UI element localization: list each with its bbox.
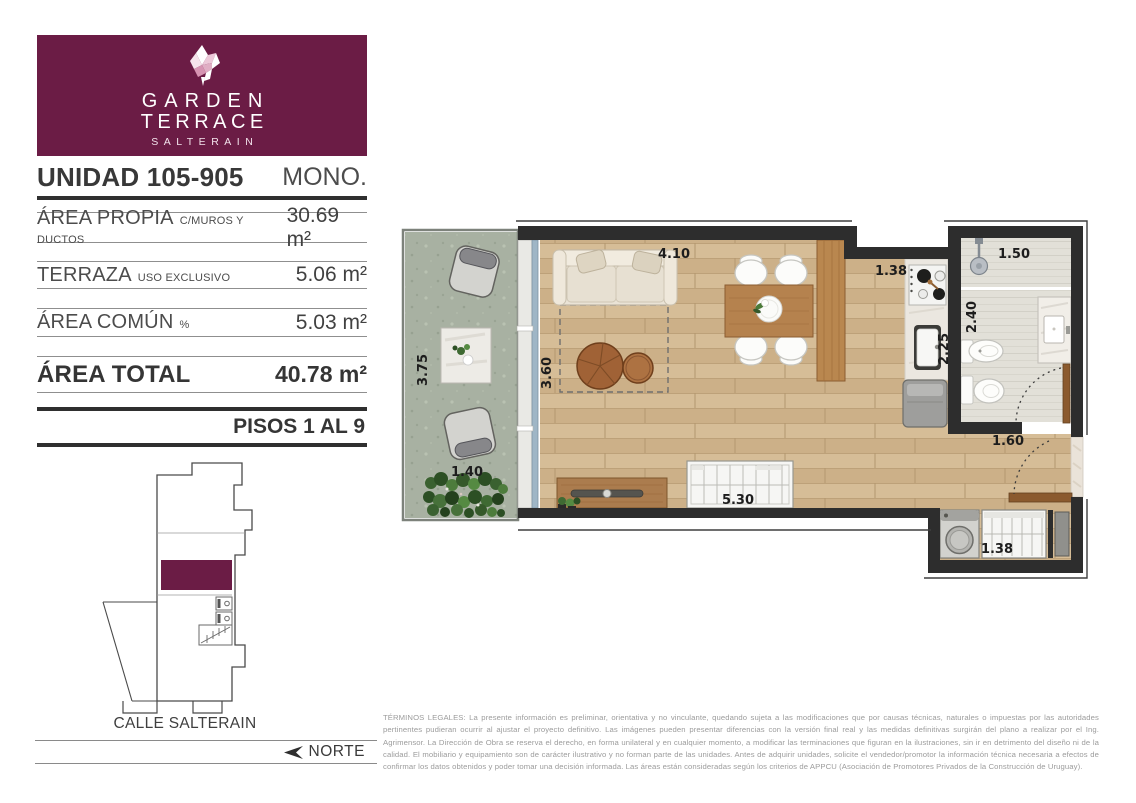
area-sublabel: % bbox=[179, 319, 189, 331]
dim-living-depth: 3.60 bbox=[540, 357, 555, 389]
terrace-chair bbox=[443, 406, 498, 462]
stove bbox=[909, 265, 946, 305]
vanity bbox=[1038, 297, 1071, 363]
chair bbox=[775, 334, 807, 360]
unit-title-row: UNIDAD 105-905 MONO. bbox=[37, 158, 367, 196]
legal-terms: TÉRMINOS LEGALES: La presente informació… bbox=[383, 712, 1099, 773]
street-label: CALLE SALTERAIN bbox=[95, 715, 275, 733]
area-row-propia: ÁREA PROPIAC/MUROS Y DUCTOS 30.69 m² bbox=[37, 212, 367, 243]
area-value: 30.69 m² bbox=[287, 204, 367, 252]
unit-number: UNIDAD 105-905 bbox=[37, 162, 244, 193]
area-value: 5.06 m² bbox=[296, 263, 367, 287]
dim-counter-depth: 2.25 bbox=[937, 333, 952, 365]
dim-terrace-depth: 3.75 bbox=[416, 354, 431, 386]
dim-living-width: 4.10 bbox=[658, 247, 690, 262]
chair bbox=[735, 334, 767, 360]
divider bbox=[37, 196, 367, 200]
window-mullion bbox=[517, 426, 533, 431]
area-row-terraza: TERRAZAUSO EXCLUSIVO 5.06 m² bbox=[37, 261, 367, 289]
brand-name-line1: GARDEN bbox=[135, 91, 270, 112]
bathroom-door bbox=[1063, 364, 1070, 423]
unit-sheet-page: GARDEN TERRACE SALTERAIN UNIDAD 105-905 … bbox=[0, 0, 1136, 803]
brand-name-line2: TERRACE bbox=[136, 112, 268, 133]
highlighted-unit bbox=[161, 560, 232, 590]
chair bbox=[735, 260, 767, 286]
divider bbox=[37, 407, 367, 411]
brand-logo: GARDEN TERRACE SALTERAIN bbox=[37, 35, 367, 156]
area-label: TERRAZA bbox=[37, 264, 132, 286]
dim-terrace-width: 1.40 bbox=[451, 465, 483, 480]
wood-partition bbox=[817, 240, 845, 381]
brand-name-line3: SALTERAIN bbox=[146, 136, 259, 148]
dim-laundry-width: 1.38 bbox=[981, 542, 1013, 557]
fridge bbox=[903, 380, 947, 427]
area-value: 5.03 m² bbox=[296, 311, 367, 335]
window-glass bbox=[532, 240, 538, 508]
media-console bbox=[557, 478, 667, 510]
shower-glass bbox=[961, 287, 1071, 290]
area-row-total: ÁREA TOTAL 40.78 m² bbox=[37, 356, 367, 393]
lot-boundary bbox=[103, 602, 157, 701]
unit-type: MONO. bbox=[282, 163, 367, 192]
dim-closet-width: 5.30 bbox=[722, 493, 754, 508]
window-track bbox=[518, 240, 532, 508]
dim-kitchen-width: 1.38 bbox=[875, 264, 907, 279]
divider bbox=[35, 740, 377, 741]
entry-door bbox=[1009, 493, 1072, 502]
area-label: ÁREA PROPIA bbox=[37, 207, 174, 229]
area-sublabel: USO EXCLUSIVO bbox=[138, 272, 230, 284]
terrace-table bbox=[441, 328, 491, 383]
floor-plan: 4.10 1.38 1.50 2.40 2.25 3.60 3.75 1.40 … bbox=[395, 213, 1095, 665]
bidet bbox=[961, 340, 1003, 363]
building-key-plan bbox=[95, 455, 275, 715]
divider bbox=[35, 763, 377, 764]
dim-bath-width: 1.50 bbox=[998, 247, 1030, 262]
window-mullion bbox=[517, 326, 533, 331]
divider bbox=[37, 443, 367, 447]
north-indicator: NORTE bbox=[240, 743, 365, 761]
area-total-label: ÁREA TOTAL bbox=[37, 361, 191, 389]
dim-bath-depth: 2.40 bbox=[965, 301, 980, 333]
area-label: ÁREA COMÚN bbox=[37, 311, 173, 333]
floors-label: PISOS 1 AL 9 bbox=[37, 412, 365, 442]
chair bbox=[775, 260, 807, 286]
area-total-value: 40.78 m² bbox=[275, 361, 367, 388]
dim-hall-width: 1.60 bbox=[992, 434, 1024, 449]
leaf-icon bbox=[181, 43, 223, 87]
north-label: NORTE bbox=[309, 743, 365, 761]
north-arrow-icon bbox=[278, 745, 304, 760]
duct-panel bbox=[1055, 512, 1069, 556]
area-row-comun: ÁREA COMÚN% 5.03 m² bbox=[37, 308, 367, 337]
